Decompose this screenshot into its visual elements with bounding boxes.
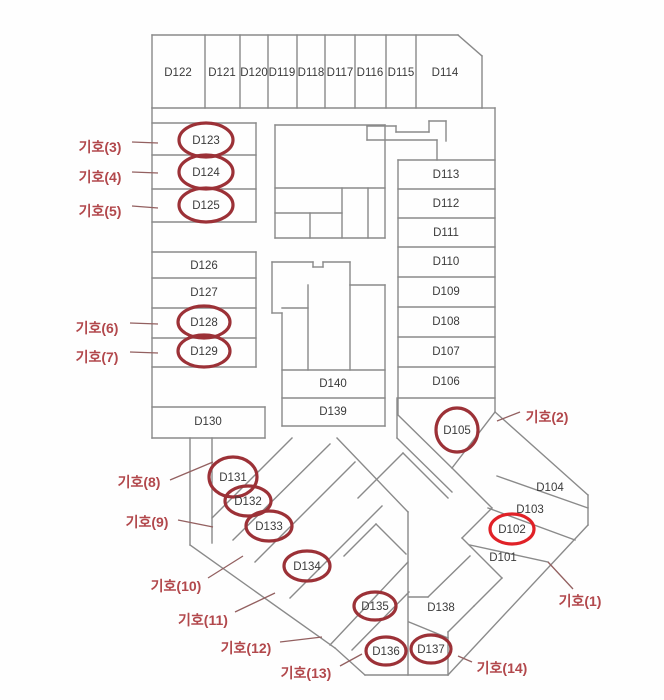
room-label-D112: D112 <box>433 198 460 210</box>
room-label-D137: D137 <box>417 644 445 656</box>
room-label-D140: D140 <box>319 378 347 390</box>
room-label-D126: D126 <box>190 260 218 272</box>
marker-label-9: 기호(9) <box>126 514 169 530</box>
room-label-D129: D129 <box>190 346 218 358</box>
room-label-D127: D127 <box>190 287 218 299</box>
room-label-D139: D139 <box>319 406 347 418</box>
room-label-D101: D101 <box>489 552 517 564</box>
room-label-D132: D132 <box>234 496 262 508</box>
room-label-D136: D136 <box>372 646 400 658</box>
room-label-D108: D108 <box>432 316 460 328</box>
room-label-D120: D120 <box>240 67 268 79</box>
room-label-D110: D110 <box>433 256 460 268</box>
room-label-D106: D106 <box>432 376 460 388</box>
marker-label-5: 기호(5) <box>79 203 122 219</box>
room-label-D105: D105 <box>443 425 471 437</box>
room-label-D121: D121 <box>208 67 236 79</box>
marker-label-2: 기호(2) <box>526 409 569 425</box>
room-label-D128: D128 <box>190 317 218 329</box>
room-label-D124: D124 <box>192 167 220 179</box>
room-label-D131: D131 <box>219 472 247 484</box>
room-label-D123: D123 <box>192 135 220 147</box>
room-label-D114: D114 <box>432 67 459 79</box>
room-label-D138: D138 <box>427 602 455 614</box>
marker-label-12: 기호(12) <box>221 640 272 656</box>
room-label-D133: D133 <box>255 521 283 533</box>
room-label-D135: D135 <box>361 601 389 613</box>
room-label-D119: D119 <box>269 67 296 79</box>
room-label-D104: D104 <box>536 482 564 494</box>
marker-label-6: 기호(6) <box>76 320 119 336</box>
marker-label-13: 기호(13) <box>281 665 332 681</box>
room-label-D122: D122 <box>164 67 192 79</box>
marker-label-14: 기호(14) <box>477 660 528 676</box>
room-label-D109: D109 <box>432 286 460 298</box>
room-label-D118: D118 <box>298 67 325 79</box>
room-label-D102: D102 <box>498 524 526 536</box>
room-label-D116: D116 <box>357 67 384 79</box>
room-label-D130: D130 <box>194 416 222 428</box>
room-label-D117: D117 <box>327 67 354 79</box>
marker-label-1: 기호(1) <box>559 593 602 609</box>
marker-label-7: 기호(7) <box>76 349 119 365</box>
floor-plan-page: D122D121D120D119D118D117D116D115D114D123… <box>0 0 664 700</box>
room-label-D111: D111 <box>433 227 459 239</box>
room-label-D125: D125 <box>192 200 220 212</box>
room-label-D134: D134 <box>293 561 321 573</box>
marker-label-10: 기호(10) <box>151 578 202 594</box>
room-label-D107: D107 <box>432 346 460 358</box>
marker-label-4: 기호(4) <box>79 169 122 185</box>
marker-label-8: 기호(8) <box>118 474 161 490</box>
room-label-D113: D113 <box>433 169 460 181</box>
floor-plan: D122D121D120D119D118D117D116D115D114D123… <box>0 0 664 700</box>
room-label-D115: D115 <box>388 67 415 79</box>
marker-label-11: 기호(11) <box>178 612 228 628</box>
marker-label-3: 기호(3) <box>79 139 122 155</box>
